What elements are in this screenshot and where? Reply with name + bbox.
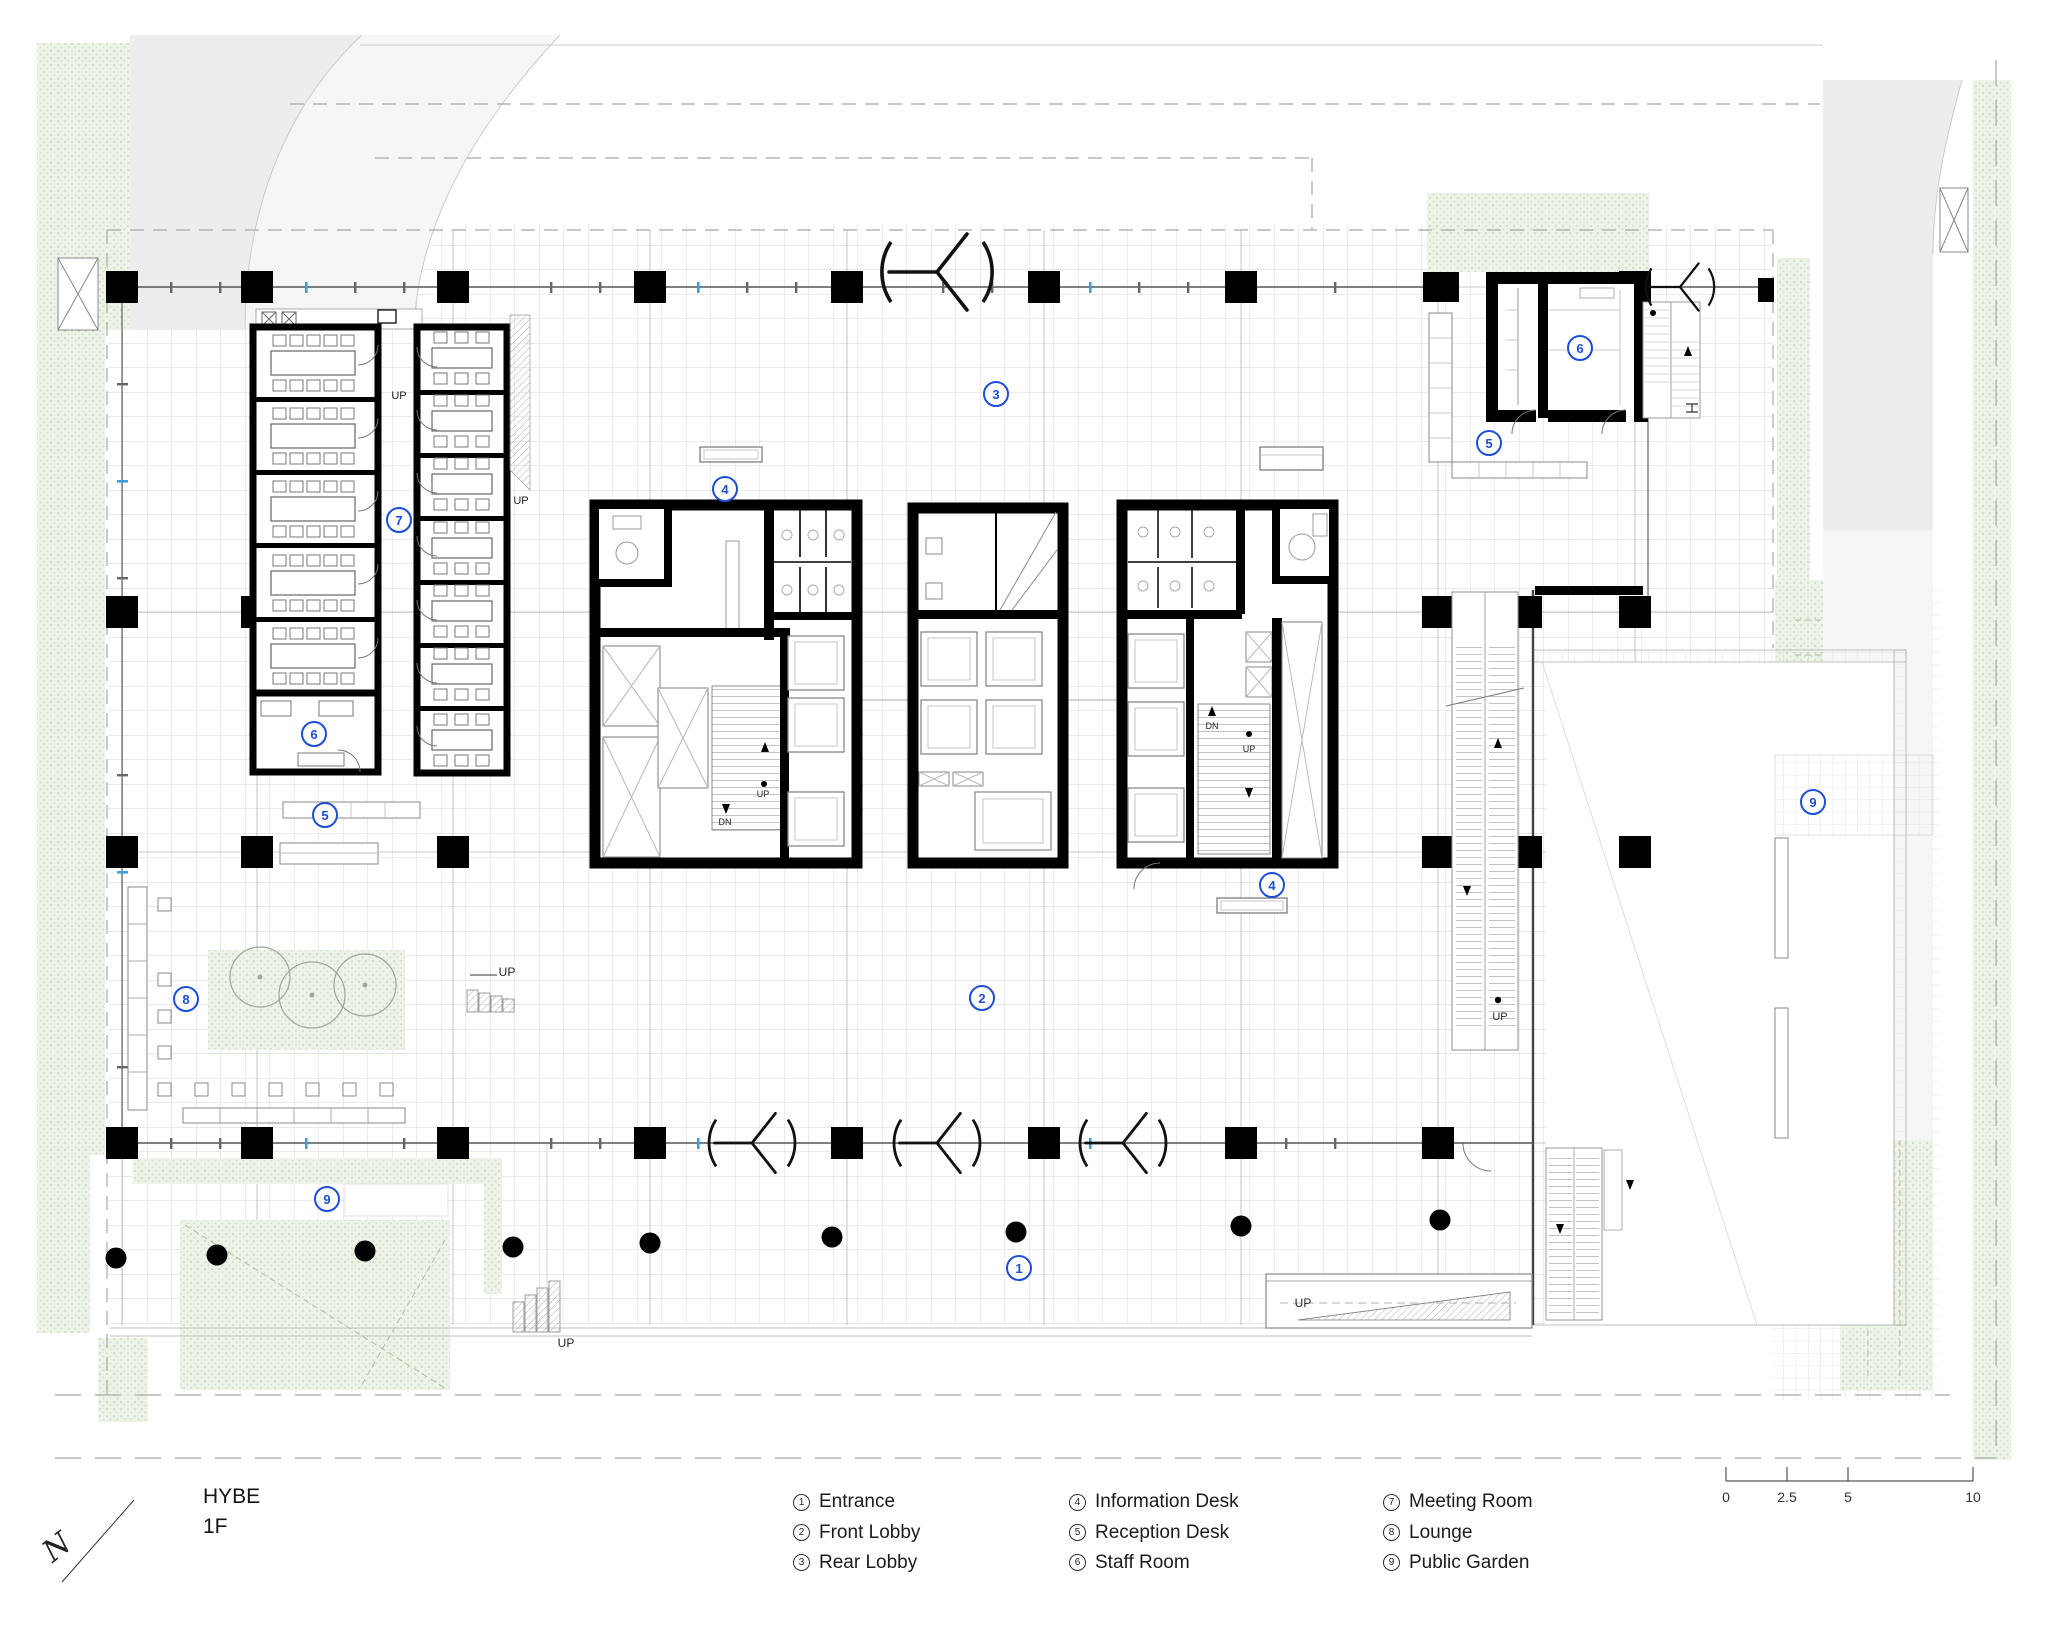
title-block: HYBE 1F (203, 1482, 260, 1542)
floor-label: 1F (203, 1512, 260, 1542)
project-title: HYBE (203, 1482, 260, 1512)
core-west (590, 505, 857, 863)
floorplan-sheet: HYBE 1F 1Entrance2Front Lobby3Rear Lobby… (0, 0, 2048, 1636)
core-east (1117, 505, 1333, 889)
core-center (908, 508, 1068, 863)
floorplan-drawing (0, 0, 2048, 1636)
garden-path (1775, 755, 1933, 835)
north-arrow-line (62, 1500, 134, 1582)
scale-bar (1726, 1467, 1973, 1481)
escalators (1446, 592, 1524, 1050)
